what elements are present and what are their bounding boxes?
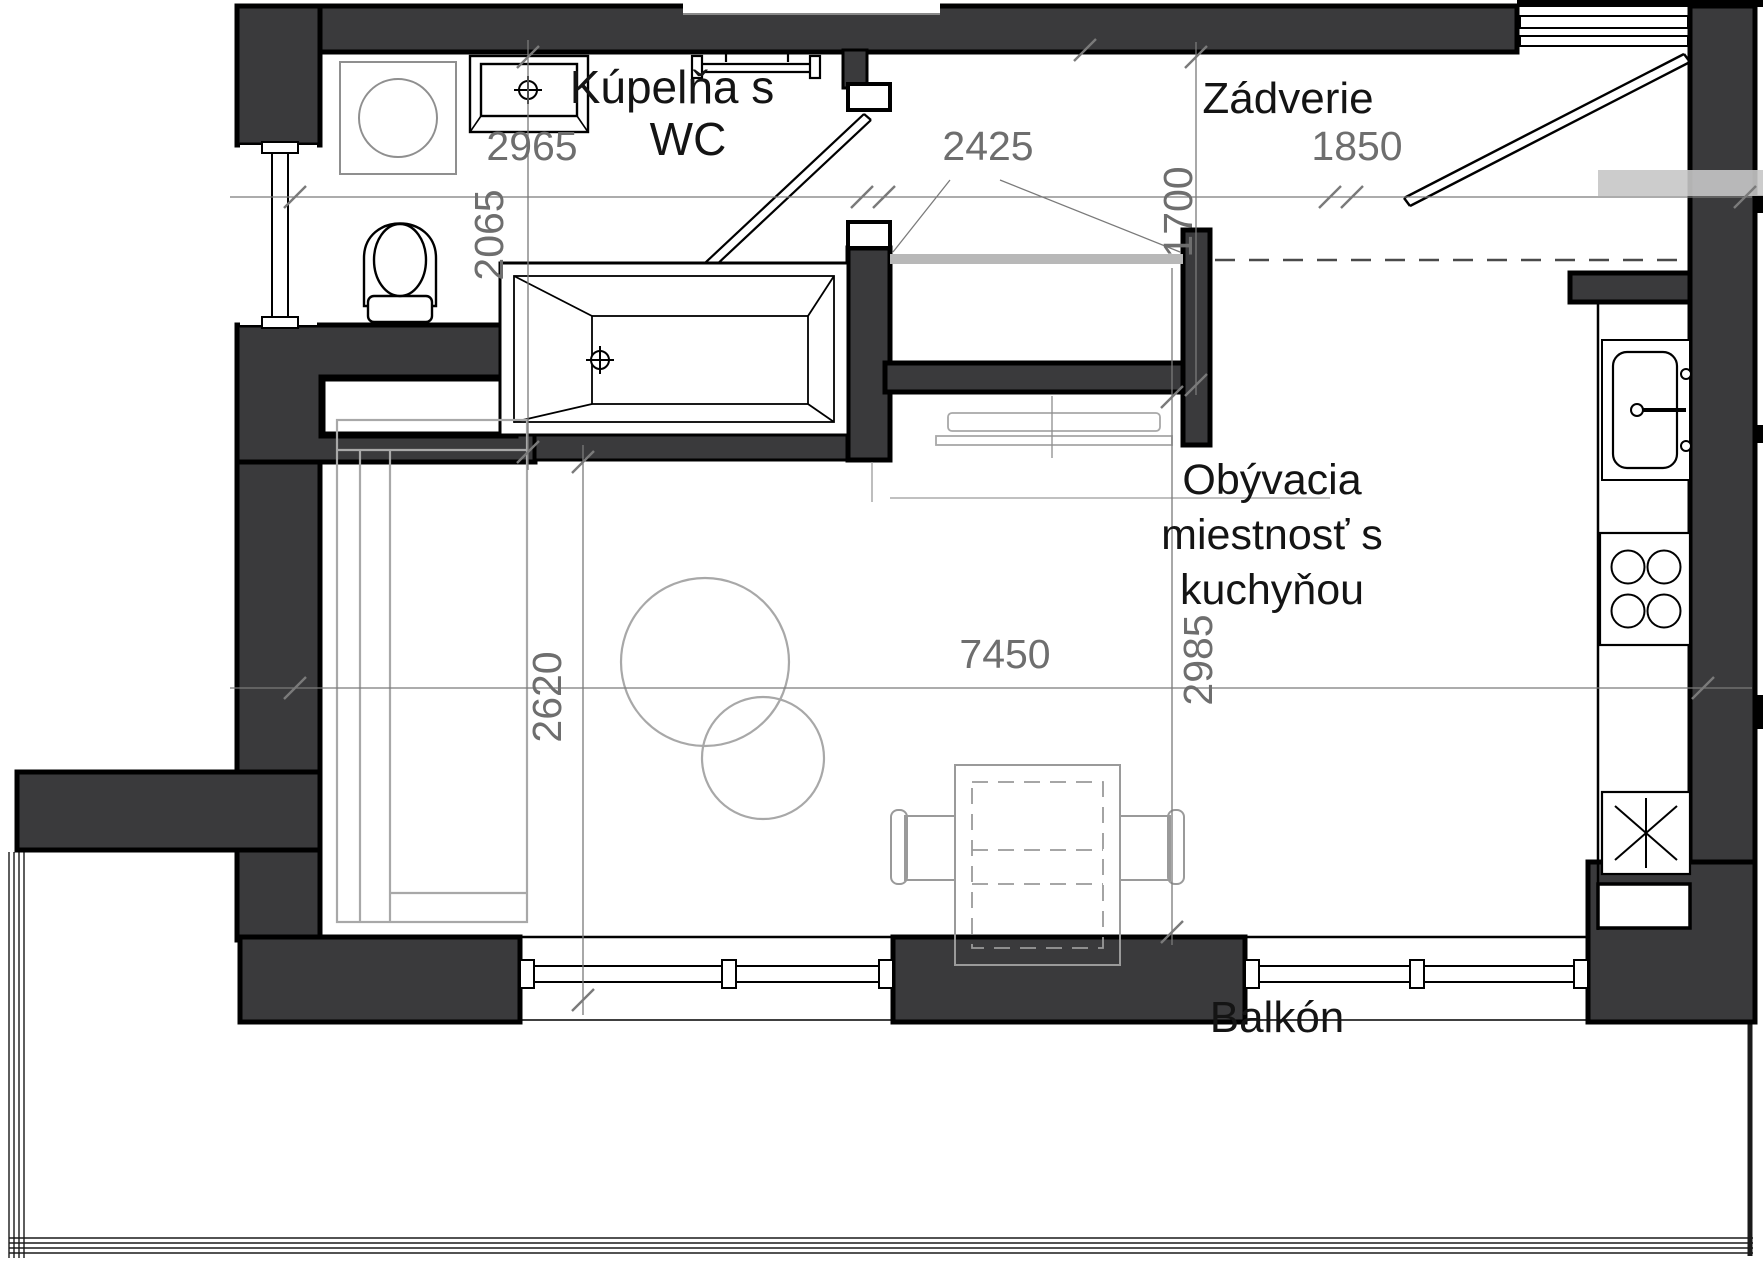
dim-bathroom-depth: 2065 — [466, 189, 512, 280]
dim-entry-zone-width: 1850 — [1311, 123, 1402, 169]
floor-plan-drawing: Kúpelňa s WC Zádverie Obývacia miestnosť… — [0, 0, 1763, 1264]
room-label-living-line3: kuchyňou — [1180, 566, 1364, 614]
room-label-living-line1: Obývacia — [1182, 456, 1361, 504]
wall-bottom-2 — [893, 937, 1245, 1022]
dim-sofa-zone-depth: 2620 — [524, 651, 570, 742]
passage-beam — [890, 254, 1183, 264]
room-label-bathroom-line2: WC — [650, 113, 727, 165]
dim-living-depth: 2985 — [1175, 614, 1221, 705]
room-label-hallway: Zádverie — [1202, 74, 1373, 123]
toilet — [364, 224, 436, 323]
bathroom-wall-niche — [322, 378, 515, 435]
fridge-slot-niche — [1598, 884, 1690, 928]
room-label-living-line2: miestnosť s — [1161, 511, 1383, 559]
gray-band-right — [1598, 170, 1763, 196]
dim-living-total-width: 7450 — [959, 631, 1050, 677]
wall-tv — [885, 363, 1210, 392]
dim-hall-depth: 1700 — [1155, 166, 1201, 257]
wall-bottom-1 — [240, 937, 520, 1022]
stove-4-burners — [1600, 533, 1690, 645]
wall-balcony-divider — [17, 772, 320, 850]
dim-bathroom-width: 2965 — [486, 123, 577, 169]
tv-lowboard — [936, 413, 1172, 445]
floor-plan-page: Kúpelňa s WC Zádverie Obývacia miestnosť… — [0, 0, 1763, 1264]
room-label-bathroom-line1: Kúpelňa s — [570, 61, 775, 113]
sofa — [337, 420, 527, 922]
chair-right — [1120, 810, 1184, 884]
wall-kitchen-stub — [1570, 273, 1690, 302]
wall-bath-right — [848, 248, 890, 460]
kitchen-sink — [1602, 340, 1691, 480]
dimension-ticks — [284, 39, 1756, 1011]
room-label-balcony: Balkón — [1210, 993, 1345, 1042]
entrance-door-frame-a — [1520, 16, 1688, 28]
bathroom-door-post-bottom — [848, 222, 890, 248]
bathtub — [500, 263, 848, 435]
round-armchair — [621, 578, 789, 746]
top-wall-niche — [683, 0, 940, 14]
left-window-gap — [240, 145, 317, 325]
fridge — [1602, 792, 1690, 874]
bathroom-door-post-top — [848, 84, 890, 110]
wall-neighbor-top-strip — [1517, 0, 1763, 7]
round-side-table — [702, 697, 824, 819]
wall-top-left-block — [237, 6, 320, 145]
entrance-door-frame-b — [1520, 36, 1688, 46]
washing-machine — [340, 62, 456, 174]
dimension-lines — [230, 40, 1752, 1015]
chair-left — [891, 810, 955, 884]
dim-hall-opening-width: 2425 — [942, 123, 1033, 169]
